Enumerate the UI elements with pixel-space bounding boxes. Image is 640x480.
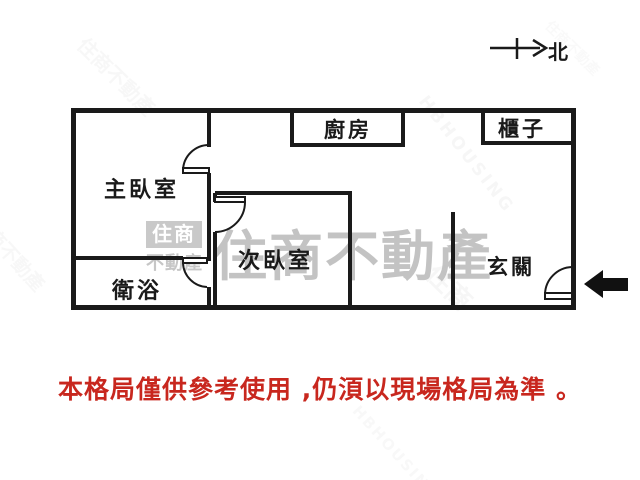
door-entry [545, 267, 572, 299]
floor-plan-linework [0, 0, 640, 480]
north-arrow-icon [490, 38, 546, 59]
room-label-cabinet: 櫃子 [498, 113, 546, 143]
room-label-master-bedroom: 主臥室 [104, 172, 179, 204]
north-label: 北 [548, 36, 568, 65]
door-master-bedroom [183, 145, 209, 173]
disclaimer-text: 本格局僅供參考使用 ,仍湏以現場格局為準 。 [0, 370, 640, 406]
door-bathroom [183, 258, 207, 287]
room-label-bathroom: 衛浴 [112, 273, 162, 305]
room-label-second-bedroom: 次臥室 [238, 243, 313, 275]
room-label-entry: 玄關 [487, 251, 535, 281]
floor-plan-image: 住商不動產 HBHOUSING 住商 住商不動產 HBHOUSING 住商不動產… [0, 0, 640, 480]
door-second-bedroom [215, 197, 245, 232]
entry-arrow-icon [584, 270, 628, 298]
room-label-kitchen: 廚房 [324, 114, 372, 144]
